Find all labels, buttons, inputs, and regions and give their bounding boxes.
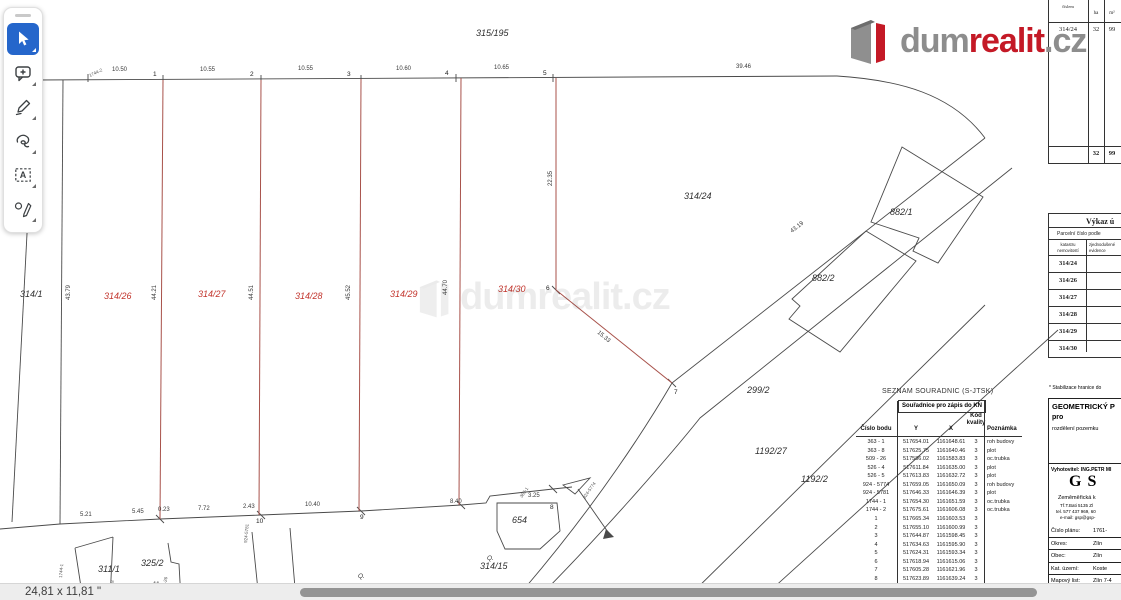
point-id-label: 1744-2: [88, 67, 103, 78]
new-parcel-label-314-28: 314/28: [295, 291, 323, 301]
plan-info-label: Číslo plánu:: [1051, 528, 1080, 534]
point-label-9: 9: [360, 514, 364, 521]
parcel-label-314-24: 314/24: [684, 191, 712, 201]
coord-cell: 2: [856, 525, 896, 531]
dimension-label: 5.45: [132, 509, 144, 515]
coord-cell: 3: [968, 567, 984, 573]
vykaz-subtitle: Parcelní číslo podle: [1057, 231, 1101, 237]
plan-info-row: Číslo plánu:1761-: [1049, 525, 1121, 538]
dimension-label: 2.43: [243, 504, 255, 510]
plan-info-label: Obec:: [1051, 553, 1066, 559]
coord-cell: 924 - 5774: [856, 482, 896, 488]
coord-cell: 3: [968, 507, 984, 513]
col-point-header: Číslo bodu: [856, 426, 896, 432]
plan-info-value: 1761-: [1093, 528, 1107, 534]
vykaz-col2-line1: zjednodušené: [1089, 242, 1121, 247]
logo-part-realit: realit: [969, 22, 1044, 60]
coord-cell: 1161603.53: [934, 516, 968, 522]
parcel-label-314-15: 314/15: [480, 561, 509, 571]
vykaz-parcel-number: 314/26: [1049, 277, 1087, 284]
dimension-label: 8.40: [450, 499, 462, 505]
vykaz-row: 314/28: [1049, 307, 1121, 324]
coord-cell: 526 - 5: [856, 473, 896, 479]
coord-cell: 517611.84: [898, 465, 934, 471]
coord-cell: 1161606.08: [934, 507, 968, 513]
coord-cell: 1161600.99: [934, 525, 968, 531]
coord-cell: 3: [968, 533, 984, 539]
plan-info-value: Koste: [1093, 566, 1107, 572]
coord-cell: 517675.61: [898, 507, 934, 513]
svg-text:A: A: [20, 170, 27, 180]
coord-cell: 3: [968, 448, 984, 454]
horizontal-scrollbar-thumb[interactable]: [300, 588, 1037, 597]
point-label-4: 4: [445, 70, 449, 77]
dimension-label: 10.55: [200, 67, 216, 73]
area-total-ha: 32: [1088, 150, 1104, 157]
sign-tool-button[interactable]: [7, 193, 39, 225]
coord-cell: 1161598.45: [934, 533, 968, 539]
coord-cell: 1161635.00: [934, 465, 968, 471]
area-row-m2: 99: [1104, 26, 1120, 33]
orchard-symbol: Q.: [487, 555, 494, 562]
coord-cell: 1161646.39: [934, 490, 968, 496]
vykaz-table: Výkaz ú Parcelní číslo podle katastru ne…: [1048, 213, 1121, 352]
coord-cell: 517625.75: [898, 448, 934, 454]
coord-cell: 3: [968, 490, 984, 496]
coord-cell: 3: [856, 533, 896, 539]
vykaz-parcel-number: 314/29: [1049, 328, 1087, 335]
parcel-label-882-1: 882/1: [890, 207, 913, 217]
point-label-10: 10: [256, 518, 264, 525]
coord-cell: 509 - 26: [856, 456, 896, 462]
point-id-label: 924-5774: [582, 481, 597, 500]
coord-cell: 3: [968, 482, 984, 488]
parcel-label-1192-2: 1192/2: [801, 474, 828, 484]
dimension-label: 44.21: [152, 284, 158, 300]
coord-cell: 1161651.59: [934, 499, 968, 505]
dimension-label: 39.46: [736, 64, 752, 70]
lasso-icon: [13, 131, 33, 151]
coord-cell: 517624.31: [898, 550, 934, 556]
vykaz-parcel-number: 314/30: [1049, 345, 1087, 352]
coord-cell: 3: [968, 542, 984, 548]
parcel-label-1192-27: 1192/27: [755, 446, 788, 456]
dimension-label: 22.35: [548, 170, 554, 186]
dimension-label: 0.23: [158, 507, 170, 513]
coord-cell: 3: [968, 516, 984, 522]
vykaz-row: 314/24: [1049, 256, 1121, 273]
coord-cell: 517659.05: [898, 482, 934, 488]
coord-cell: 3: [968, 473, 984, 479]
coord-cell: 517586.02: [898, 456, 934, 462]
coord-cell: 363 - 8: [856, 448, 896, 454]
dumrealit-logo[interactable]: dumrealit.cz: [848, 16, 1086, 66]
col-kod-line1: Kód: [968, 413, 984, 419]
parcel-label-311-1: 311/1: [98, 564, 120, 574]
vykaz-row: 314/27: [1049, 290, 1121, 307]
point-label-1: 1: [153, 71, 157, 78]
point-label-6: 6: [546, 285, 550, 292]
area-total-m2: 99: [1104, 150, 1120, 157]
coord-cell: plot: [987, 473, 1022, 479]
vykaz-parcel-number: 314/27: [1049, 294, 1087, 301]
vykaz-col2-line2: evidence: [1089, 248, 1121, 253]
cursor-icon: [13, 29, 33, 49]
coord-cell: 517605.28: [898, 567, 934, 573]
coord-cell: 4: [856, 542, 896, 548]
parcel-label-299-2: 299/2: [746, 385, 770, 395]
plan-info-row: Kat. území:Koste: [1049, 563, 1121, 576]
coord-cell: 363 - 1: [856, 439, 896, 445]
new-parcel-label-314-26: 314/26: [104, 291, 132, 301]
coordinate-list: SEZNAM SOUŘADNIC (S-JTSK) Souřadnice pro…: [856, 388, 1022, 600]
company-name: Zeměměřická k: [1058, 495, 1096, 501]
new-parcel-label-314-29: 314/29: [390, 289, 418, 299]
coord-span-header: Souřadnice pro zápis do KN: [898, 400, 986, 413]
plan-info-row: Okres:Zlín: [1049, 538, 1121, 551]
point-label-2: 2: [250, 71, 254, 78]
vykaz-row: 314/29: [1049, 324, 1121, 341]
coord-cell: 3: [968, 439, 984, 445]
pencil-icon: [13, 97, 33, 117]
comment-tool-button[interactable]: [7, 57, 39, 89]
coord-cell: 924 - 5781: [856, 490, 896, 496]
area-row-ha: 32: [1088, 26, 1104, 33]
plan-info-value: Zlín: [1093, 553, 1102, 559]
point-label-3: 3: [347, 71, 351, 78]
select-tool-button[interactable]: [7, 23, 39, 55]
plan-info-value: Zlín: [1093, 541, 1102, 547]
coord-cell: 1744 - 2: [856, 507, 896, 513]
coord-cell: 3: [968, 550, 984, 556]
text-box-icon: A: [13, 165, 33, 185]
coord-cell: roh budovy: [987, 439, 1022, 445]
dimension-label: 43.19: [790, 220, 806, 234]
parcel-label-315-195: 315/195: [476, 28, 510, 38]
orchard-symbol: Q.: [358, 573, 365, 580]
pdf-viewer-stage: { "toolbar": { "tools": [ {"name": "sele…: [0, 0, 1121, 600]
coord-cell: 1161632.72: [934, 473, 968, 479]
coord-cell: 5: [856, 550, 896, 556]
vykaz-parcel-number: 314/24: [1049, 260, 1087, 267]
coord-cell: 517644.87: [898, 533, 934, 539]
dimension-label: 5.21: [80, 512, 92, 518]
point-label-7: 7: [674, 389, 678, 396]
building-882-2: [789, 231, 916, 352]
coord-cell: 1161593.34: [934, 550, 968, 556]
dimension-label: 10.65: [494, 65, 510, 71]
coord-cell: plot: [987, 465, 1022, 471]
coord-cell: 1161595.90: [934, 542, 968, 548]
coord-cell: plot: [987, 448, 1022, 454]
coord-cell: 517654.01: [898, 439, 934, 445]
coord-cell: 3: [968, 456, 984, 462]
dimension-label: 45.52: [346, 284, 352, 300]
dumrealit-building-icon: [848, 16, 890, 66]
coord-cell: oc.trubka: [987, 456, 1022, 462]
new-parcel-label-314-27: 314/27: [198, 289, 227, 299]
coord-cell: 1161639.24: [934, 576, 968, 582]
parcel-label-314-1: 314/1: [20, 289, 43, 299]
vykaz-parcel-number: 314/28: [1049, 311, 1087, 318]
coord-cell: roh budovy: [987, 482, 1022, 488]
vykaz-row: 314/26: [1049, 273, 1121, 290]
logo-part-dum: dum: [900, 22, 969, 60]
annotation-toolbar: A: [3, 7, 43, 233]
dimension-label: 10.55: [298, 66, 314, 72]
coord-cell: 7: [856, 567, 896, 573]
plan-info-label: Okres:: [1051, 541, 1067, 547]
coord-cell: 517623.89: [898, 576, 934, 582]
coord-cell: plot: [987, 490, 1022, 496]
plan-info-row: Obec:Zlín: [1049, 550, 1121, 563]
dimension-label: 10.50: [112, 67, 128, 73]
vykaz-col1-line2: nemovitostí: [1049, 248, 1087, 253]
coord-cell: 517613.83: [898, 473, 934, 479]
coord-cell: 517665.34: [898, 516, 934, 522]
dimension-label: 43.79: [66, 284, 72, 300]
bottom-status-bar: 24,81 x 11,81 ": [0, 583, 1121, 600]
vykaz-title: Výkaz ú: [1086, 217, 1114, 226]
comment-plus-icon: [13, 63, 33, 83]
coord-cell: 3: [968, 559, 984, 565]
geometric-plan-block: * Stabilizace hranice do GEOMETRICKÝ P p…: [1046, 384, 1121, 600]
area-table-header: číslem: [1050, 4, 1086, 9]
coord-cell: 1161640.46: [934, 448, 968, 454]
coord-cell: 1161621.96: [934, 567, 968, 573]
dimension-label: 10.40: [305, 502, 321, 508]
col-m2: m²: [1104, 11, 1120, 16]
toolbar-drag-handle[interactable]: [15, 14, 31, 17]
coordinate-list-title: SEZNAM SOUŘADNIC (S-JTSK): [882, 388, 993, 395]
vykaz-col1-line1: katastru: [1049, 242, 1087, 247]
coord-cell: 3: [968, 525, 984, 531]
coord-cell: 8: [856, 576, 896, 582]
vykaz-row: 314/30: [1049, 341, 1121, 358]
draw-tool-button[interactable]: [7, 91, 39, 123]
point-id-label: 924-5781: [243, 523, 250, 543]
col-ha: ha: [1088, 11, 1104, 16]
dimension-label: 44.51: [249, 284, 255, 300]
col-y-header: Y: [898, 426, 934, 432]
coord-cell: 526 - 4: [856, 465, 896, 471]
stabilization-note: * Stabilizace hranice do: [1049, 385, 1101, 391]
parcel-label-882-2: 882/2: [812, 273, 835, 283]
plan-title2: pro: [1052, 414, 1063, 421]
coord-cell: 517646.33: [898, 490, 934, 496]
point-label-8: 8: [550, 504, 554, 511]
coord-cell: 1744 - 1: [856, 499, 896, 505]
coord-cell: 1161650.09: [934, 482, 968, 488]
company-address: Tř.T.Bati 5135 Zl: [1060, 503, 1093, 508]
plan-subtitle: rozdělení pozemku: [1052, 426, 1098, 432]
new-parcel-label-314-30: 314/30: [498, 284, 526, 294]
coord-cell: 6: [856, 559, 896, 565]
plan-title: GEOMETRICKÝ P: [1052, 402, 1115, 411]
coord-cell: oc.trubka: [987, 507, 1022, 513]
text-box-tool-button[interactable]: A: [7, 159, 39, 191]
company-logo-text: GS: [1069, 473, 1102, 491]
point-label-5: 5: [543, 70, 547, 77]
plan-info-label: Kat. území:: [1051, 566, 1079, 572]
col-x-header: X: [934, 426, 968, 432]
dimension-label: 44.70: [443, 279, 449, 295]
coord-cell: 517618.94: [898, 559, 934, 565]
parcel-label-325-2: 325/2: [141, 558, 164, 568]
coord-cell: 3: [968, 499, 984, 505]
logo-part-cz: .cz: [1044, 22, 1086, 60]
dimension-label: 7.72: [198, 506, 210, 512]
company-phone: tel. 577 437 969, 60: [1056, 509, 1096, 514]
lasso-tool-button[interactable]: [7, 125, 39, 157]
coord-cell: 517654.30: [898, 499, 934, 505]
coord-cell: 1161583.83: [934, 456, 968, 462]
coord-cell: 1161615.06: [934, 559, 968, 565]
coord-cell: 1: [856, 516, 896, 522]
coord-cell: 517634.63: [898, 542, 934, 548]
coord-cell: 3: [968, 576, 984, 582]
col-note-header: Poznámka: [987, 426, 1022, 432]
building-label-654: 654: [512, 515, 527, 525]
logo-text: dumrealit.cz: [900, 24, 1086, 58]
coord-cell: 1161648.61: [934, 439, 968, 445]
company-email: e-mail: gsp@gsp-: [1060, 515, 1095, 520]
dimension-label: 3.25: [528, 493, 540, 499]
coord-cell: oc.trubka: [987, 499, 1022, 505]
dimension-label: 10.60: [396, 66, 412, 72]
coord-cell: 517655.10: [898, 525, 934, 531]
coord-cell: 3: [968, 465, 984, 471]
arrow-head: [603, 529, 614, 539]
page-size-label: 24,81 x 11,81 ": [25, 586, 101, 598]
pen-shapes-icon: [13, 199, 33, 219]
point-id-label: 1744-1: [58, 563, 64, 578]
survey-point-ticks: [88, 74, 676, 523]
